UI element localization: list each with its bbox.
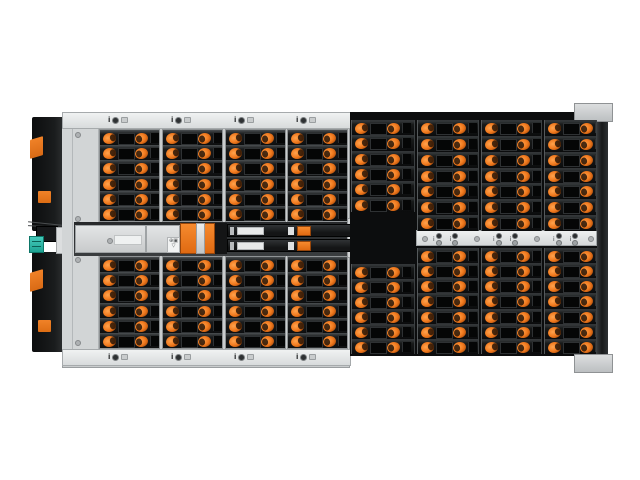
orange-handle-bottom xyxy=(38,320,51,332)
drive-top-window xyxy=(338,194,347,204)
drive-latch-right xyxy=(134,132,149,145)
drive-bay xyxy=(418,215,478,231)
bay-indicator-cluster: i xyxy=(108,116,128,124)
drive-latch-left xyxy=(354,198,369,211)
drive-latch-left xyxy=(290,289,305,302)
drive-latch-right xyxy=(134,319,149,332)
drive-latch-left xyxy=(165,289,180,302)
drive-latch-right xyxy=(452,153,467,166)
drive-top-window xyxy=(338,133,347,143)
drive-top-window xyxy=(532,139,541,149)
drive-latch-right xyxy=(579,310,594,323)
bay-indicator-cluster: i xyxy=(234,353,254,361)
power-led-icon xyxy=(112,117,119,124)
drive-latch-right xyxy=(134,147,149,160)
drive-top-window xyxy=(338,336,347,346)
drive-top-window xyxy=(500,123,517,135)
drive-top-window xyxy=(306,275,323,287)
drive-top-window xyxy=(244,148,261,160)
drive-latch-right xyxy=(386,266,401,279)
drive-latch-right xyxy=(516,325,531,338)
drive-slot-icon xyxy=(184,354,191,360)
drive-latch-left xyxy=(228,274,243,287)
drive-latch-right xyxy=(516,153,531,166)
drive-latch-left xyxy=(102,259,117,272)
drive-top-window xyxy=(436,342,453,354)
drive-bay xyxy=(163,287,222,302)
drive-top-window xyxy=(500,139,517,151)
drive-bay xyxy=(288,130,347,145)
bay-indicator-cluster: i xyxy=(296,116,316,124)
drive-top-window xyxy=(500,251,517,263)
drive-bay xyxy=(418,120,478,136)
drive-latch-right xyxy=(134,208,149,221)
drive-latch-left xyxy=(165,335,180,348)
drive-top-window xyxy=(563,251,580,263)
drive-top-window xyxy=(402,184,411,194)
drive-top-window xyxy=(500,296,517,308)
drive-latch-right xyxy=(579,341,594,354)
drive-top-window xyxy=(595,342,596,352)
drive-top-window xyxy=(563,281,580,293)
drive-latch-right xyxy=(322,147,337,160)
attention-icon: i xyxy=(234,117,236,124)
drive-latch-left xyxy=(354,281,369,294)
drive-latch-left xyxy=(420,201,435,214)
drive-top-window xyxy=(338,163,347,173)
drive-latch-left xyxy=(420,325,435,338)
drive-bay xyxy=(545,293,596,308)
drive-bay xyxy=(482,136,541,152)
drive-latch-right xyxy=(322,192,337,205)
bay-indicator-cluster: i xyxy=(234,116,254,124)
drive-top-window xyxy=(181,290,198,302)
drive-bay xyxy=(226,318,285,333)
drive-top-window xyxy=(468,218,477,228)
drive-latch-left xyxy=(354,183,369,196)
drive-bay xyxy=(352,309,414,324)
drive-latch-right xyxy=(134,335,149,348)
drive-top-window xyxy=(150,133,159,143)
drive-latch-left xyxy=(354,266,369,279)
drive-top-window xyxy=(306,179,323,191)
bay-indicator-cluster: i xyxy=(171,353,191,361)
drive-top-window xyxy=(118,148,135,160)
drive-bay xyxy=(100,176,159,191)
drive-top-window xyxy=(150,336,159,346)
drive-top-window xyxy=(563,218,580,230)
drive-latch-right xyxy=(134,177,149,190)
drive-bay xyxy=(545,278,596,293)
drive-latch-left xyxy=(354,122,369,135)
status-led-icon xyxy=(556,233,562,246)
drive-latch-right xyxy=(197,335,212,348)
drive-top-window xyxy=(532,266,541,276)
drive-top-window xyxy=(370,200,387,212)
drive-top-window xyxy=(213,163,222,173)
drive-latch-left xyxy=(102,177,117,190)
drive-top-window xyxy=(532,123,541,133)
drive-latch-right xyxy=(386,122,401,135)
drive-latch-right xyxy=(452,185,467,198)
drive-top-window xyxy=(402,123,411,133)
drive-top-window xyxy=(244,275,261,287)
drive-top-window xyxy=(244,290,261,302)
orange-latch xyxy=(297,226,311,236)
drive-bay xyxy=(226,176,285,191)
drive-top-window xyxy=(532,218,541,228)
drive-top-window xyxy=(436,281,453,293)
drive-bay xyxy=(226,287,285,302)
drive-latch-right xyxy=(386,152,401,165)
led-indicator-unit: i xyxy=(450,233,459,246)
drive-latch-left xyxy=(354,311,369,324)
drive-latch-right xyxy=(322,132,337,145)
drive-top-window xyxy=(306,290,323,302)
drive-top-window xyxy=(468,327,477,337)
drive-bay xyxy=(288,318,347,333)
drive-top-window xyxy=(181,194,198,206)
drive-bay xyxy=(288,287,347,302)
drive-top-window xyxy=(150,290,159,300)
attention-icon: i xyxy=(433,237,435,243)
drive-top-window xyxy=(338,275,347,285)
drive-latch-left xyxy=(290,132,305,145)
drive-column xyxy=(417,248,479,354)
drive-top-window xyxy=(150,275,159,285)
drive-top-window xyxy=(213,336,222,346)
drive-top-window xyxy=(213,260,222,270)
drive-top-window xyxy=(595,218,596,228)
drive-top-window xyxy=(532,202,541,212)
drive-top-window xyxy=(150,260,159,270)
drive-top-window xyxy=(370,169,387,181)
barcode-label xyxy=(237,227,264,235)
drive-top-window xyxy=(118,336,135,348)
drive-top-window xyxy=(402,327,411,337)
drive-top-window xyxy=(532,342,541,352)
drive-latch-left xyxy=(420,217,435,230)
drive-top-window xyxy=(595,202,596,212)
drive-bay xyxy=(418,248,478,263)
drive-top-window xyxy=(370,297,387,309)
drive-top-window xyxy=(276,209,285,219)
drive-top-window xyxy=(213,148,222,158)
drive-top-window xyxy=(244,306,261,318)
drive-top-window xyxy=(244,321,261,333)
drive-latch-left xyxy=(290,208,305,221)
orange-wedge-bottom xyxy=(30,269,43,292)
drive-latch-right xyxy=(197,162,212,175)
drive-top-window xyxy=(213,209,222,219)
status-led-icon xyxy=(452,233,458,246)
drive-latch-left xyxy=(102,208,117,221)
drive-latch-right xyxy=(386,341,401,354)
drive-latch-left xyxy=(102,192,117,205)
drive-bay xyxy=(352,166,414,181)
drive-top-window xyxy=(436,312,453,324)
drive-latch-right xyxy=(386,296,401,309)
drive-latch-left xyxy=(354,341,369,354)
drive-latch-right xyxy=(134,289,149,302)
drive-latch-right xyxy=(516,341,531,354)
drive-bay xyxy=(545,168,596,184)
drive-top-window xyxy=(276,148,285,158)
drive-top-window xyxy=(468,296,477,306)
drive-bay xyxy=(545,183,596,199)
drive-bay xyxy=(482,278,541,293)
drive-latch-left xyxy=(547,201,562,214)
drive-top-window xyxy=(306,163,323,175)
drive-top-window xyxy=(150,306,159,316)
drive-latch-right xyxy=(260,162,275,175)
drive-latch-right xyxy=(134,259,149,272)
drive-top-window xyxy=(370,327,387,339)
drive-bay xyxy=(482,168,541,184)
drive-bay xyxy=(288,333,347,348)
drive-top-window xyxy=(500,342,517,354)
drive-bay xyxy=(226,145,285,160)
drive-latch-left xyxy=(228,162,243,175)
drive-bay xyxy=(482,199,541,215)
drive-bay xyxy=(100,145,159,160)
drive-latch-right xyxy=(452,250,467,263)
drive-latch-right xyxy=(197,132,212,145)
drive-latch-right xyxy=(134,162,149,175)
drive-latch-left xyxy=(290,319,305,332)
barcode-label xyxy=(237,242,264,250)
power-led-icon xyxy=(112,354,119,361)
drive-latch-right xyxy=(322,335,337,348)
drive-bay xyxy=(352,324,414,339)
drive-top-window xyxy=(595,139,596,149)
enclosure-photo: ⊕▣▽ i i ⊙∀▲· · ·⊙∀▲· · · iiiiii iiiiiiii xyxy=(0,0,640,480)
drive-top-window xyxy=(468,342,477,352)
handle-stripe xyxy=(196,223,205,254)
drive-top-window xyxy=(276,290,285,300)
drive-latch-right xyxy=(579,169,594,182)
drive-top-window xyxy=(276,194,285,204)
drive-latch-left xyxy=(354,168,369,181)
drive-latch-right xyxy=(134,274,149,287)
drive-latch-right xyxy=(386,311,401,324)
drive-latch-left xyxy=(102,335,117,348)
drive-latch-left xyxy=(484,122,499,135)
drive-latch-left xyxy=(228,289,243,302)
drive-latch-right xyxy=(260,192,275,205)
psu-label xyxy=(114,235,142,245)
drive-bay xyxy=(352,294,414,309)
drive-top-window xyxy=(181,306,198,318)
drive-latch-left xyxy=(547,310,562,323)
drive-bay xyxy=(288,191,347,206)
drive-top-window xyxy=(532,251,541,261)
drive-latch-right xyxy=(260,132,275,145)
drive-top-window xyxy=(370,312,387,324)
drive-column xyxy=(481,248,542,354)
drive-bay xyxy=(226,257,285,272)
drive-top-window xyxy=(563,186,580,198)
drive-top-window xyxy=(436,139,453,151)
drive-top-window xyxy=(276,275,285,285)
drive-latch-right xyxy=(452,138,467,151)
drive-top-window xyxy=(468,123,477,133)
drive-top-window xyxy=(436,155,453,167)
drive-top-window xyxy=(118,163,135,175)
drive-bay xyxy=(163,303,222,318)
drive-top-window xyxy=(118,179,135,191)
drive-top-window xyxy=(500,171,517,183)
rail-led-group: ii xyxy=(433,233,458,246)
drive-top-window xyxy=(402,342,411,352)
drive-latch-left xyxy=(290,304,305,317)
drive-bay xyxy=(418,199,478,215)
drive-top-window xyxy=(436,186,453,198)
drive-top-window xyxy=(563,123,580,135)
drive-top-window xyxy=(563,155,580,167)
drive-top-window xyxy=(563,312,580,324)
rail-bracket-bottom-right xyxy=(574,354,613,373)
drive-latch-right xyxy=(452,265,467,278)
drive-latch-left xyxy=(228,147,243,160)
drive-latch-right xyxy=(322,259,337,272)
caution-icon: ⊕▣▽ xyxy=(167,237,180,253)
drive-top-window xyxy=(150,163,159,173)
drive-top-window xyxy=(436,327,453,339)
drive-top-window xyxy=(563,202,580,214)
left-top-black-block xyxy=(32,117,64,231)
attention-icon: i xyxy=(296,354,298,361)
attention-icon: i xyxy=(171,117,173,124)
drive-latch-left xyxy=(102,319,117,332)
drive-latch-right xyxy=(260,177,275,190)
drive-top-window xyxy=(181,260,198,272)
label-square xyxy=(288,227,294,235)
drive-top-window xyxy=(500,155,517,167)
drive-top-window xyxy=(213,194,222,204)
fan-module: ⊕▣▽ xyxy=(146,225,180,253)
drive-top-window xyxy=(468,155,477,165)
drive-top-window xyxy=(118,321,135,333)
orange-wedge-top xyxy=(30,136,43,159)
drive-latch-left xyxy=(484,201,499,214)
drive-latch-right xyxy=(386,168,401,181)
drive-latch-right xyxy=(322,304,337,317)
drive-latch-right xyxy=(452,122,467,135)
drive-latch-left xyxy=(420,122,435,135)
drive-latch-right xyxy=(260,289,275,302)
drive-latch-right xyxy=(579,265,594,278)
drive-latch-left xyxy=(290,192,305,205)
drive-bay xyxy=(163,145,222,160)
drive-bay xyxy=(418,309,478,324)
drive-bay xyxy=(545,309,596,324)
drive-top-window xyxy=(436,296,453,308)
drive-latch-right xyxy=(452,280,467,293)
power-led-icon xyxy=(175,117,182,124)
drive-latch-right xyxy=(452,310,467,323)
drive-latch-left xyxy=(102,304,117,317)
drive-top-window xyxy=(500,186,517,198)
drive-bay xyxy=(163,206,222,221)
drive-column xyxy=(162,256,223,349)
drive-bay xyxy=(545,248,596,263)
drive-latch-left xyxy=(354,137,369,150)
drive-latch-left xyxy=(228,259,243,272)
attention-icon: i xyxy=(296,117,298,124)
orange-latch xyxy=(297,241,311,251)
drive-top-window xyxy=(370,123,387,135)
drive-latch-left xyxy=(547,122,562,135)
module-tab xyxy=(230,227,234,235)
drive-bay xyxy=(226,130,285,145)
drive-top-window xyxy=(532,327,541,337)
drive-latch-right xyxy=(386,183,401,196)
drive-latch-left xyxy=(420,265,435,278)
bay-indicator-cluster: i xyxy=(171,116,191,124)
drive-top-window xyxy=(468,251,477,261)
drive-bay xyxy=(288,272,347,287)
drive-latch-right xyxy=(197,319,212,332)
drive-bay xyxy=(163,333,222,348)
drive-top-window xyxy=(595,281,596,291)
drive-bay xyxy=(545,263,596,278)
drive-column xyxy=(351,264,415,354)
drive-top-window xyxy=(500,281,517,293)
drive-latch-right xyxy=(579,250,594,263)
drive-latch-left xyxy=(228,335,243,348)
drive-top-window xyxy=(306,148,323,160)
led-indicator-unit: i xyxy=(493,233,502,246)
drive-latch-left xyxy=(547,280,562,293)
drive-latch-left xyxy=(165,274,180,287)
drive-latch-left xyxy=(547,341,562,354)
drive-latch-right xyxy=(579,325,594,338)
drive-slot-icon xyxy=(247,354,254,360)
drive-latch-left xyxy=(228,177,243,190)
drive-latch-right xyxy=(516,185,531,198)
drive-top-window xyxy=(402,282,411,292)
drive-latch-right xyxy=(197,177,212,190)
drive-slot-icon xyxy=(309,354,316,360)
drive-latch-right xyxy=(386,137,401,150)
drive-bay xyxy=(226,191,285,206)
drive-top-window xyxy=(306,194,323,206)
drive-latch-left xyxy=(228,132,243,145)
drive-latch-right xyxy=(386,198,401,211)
drive-top-window xyxy=(244,336,261,348)
drive-top-window xyxy=(338,179,347,189)
drive-column xyxy=(481,120,542,231)
drive-top-window xyxy=(150,179,159,189)
drive-latch-right xyxy=(197,208,212,221)
drive-top-window xyxy=(306,209,323,221)
drive-latch-left xyxy=(484,250,499,263)
drive-column xyxy=(417,120,479,231)
drive-top-window xyxy=(436,251,453,263)
drive-latch-left xyxy=(484,280,499,293)
drive-bay xyxy=(100,206,159,221)
drive-top-window xyxy=(150,321,159,331)
drive-bay xyxy=(418,263,478,278)
drive-bay xyxy=(418,278,478,293)
drive-latch-right xyxy=(516,280,531,293)
drive-top-window xyxy=(338,290,347,300)
drive-bay xyxy=(418,324,478,339)
drive-latch-right xyxy=(322,162,337,175)
attention-icon: i xyxy=(570,237,572,243)
drive-top-window xyxy=(532,186,541,196)
